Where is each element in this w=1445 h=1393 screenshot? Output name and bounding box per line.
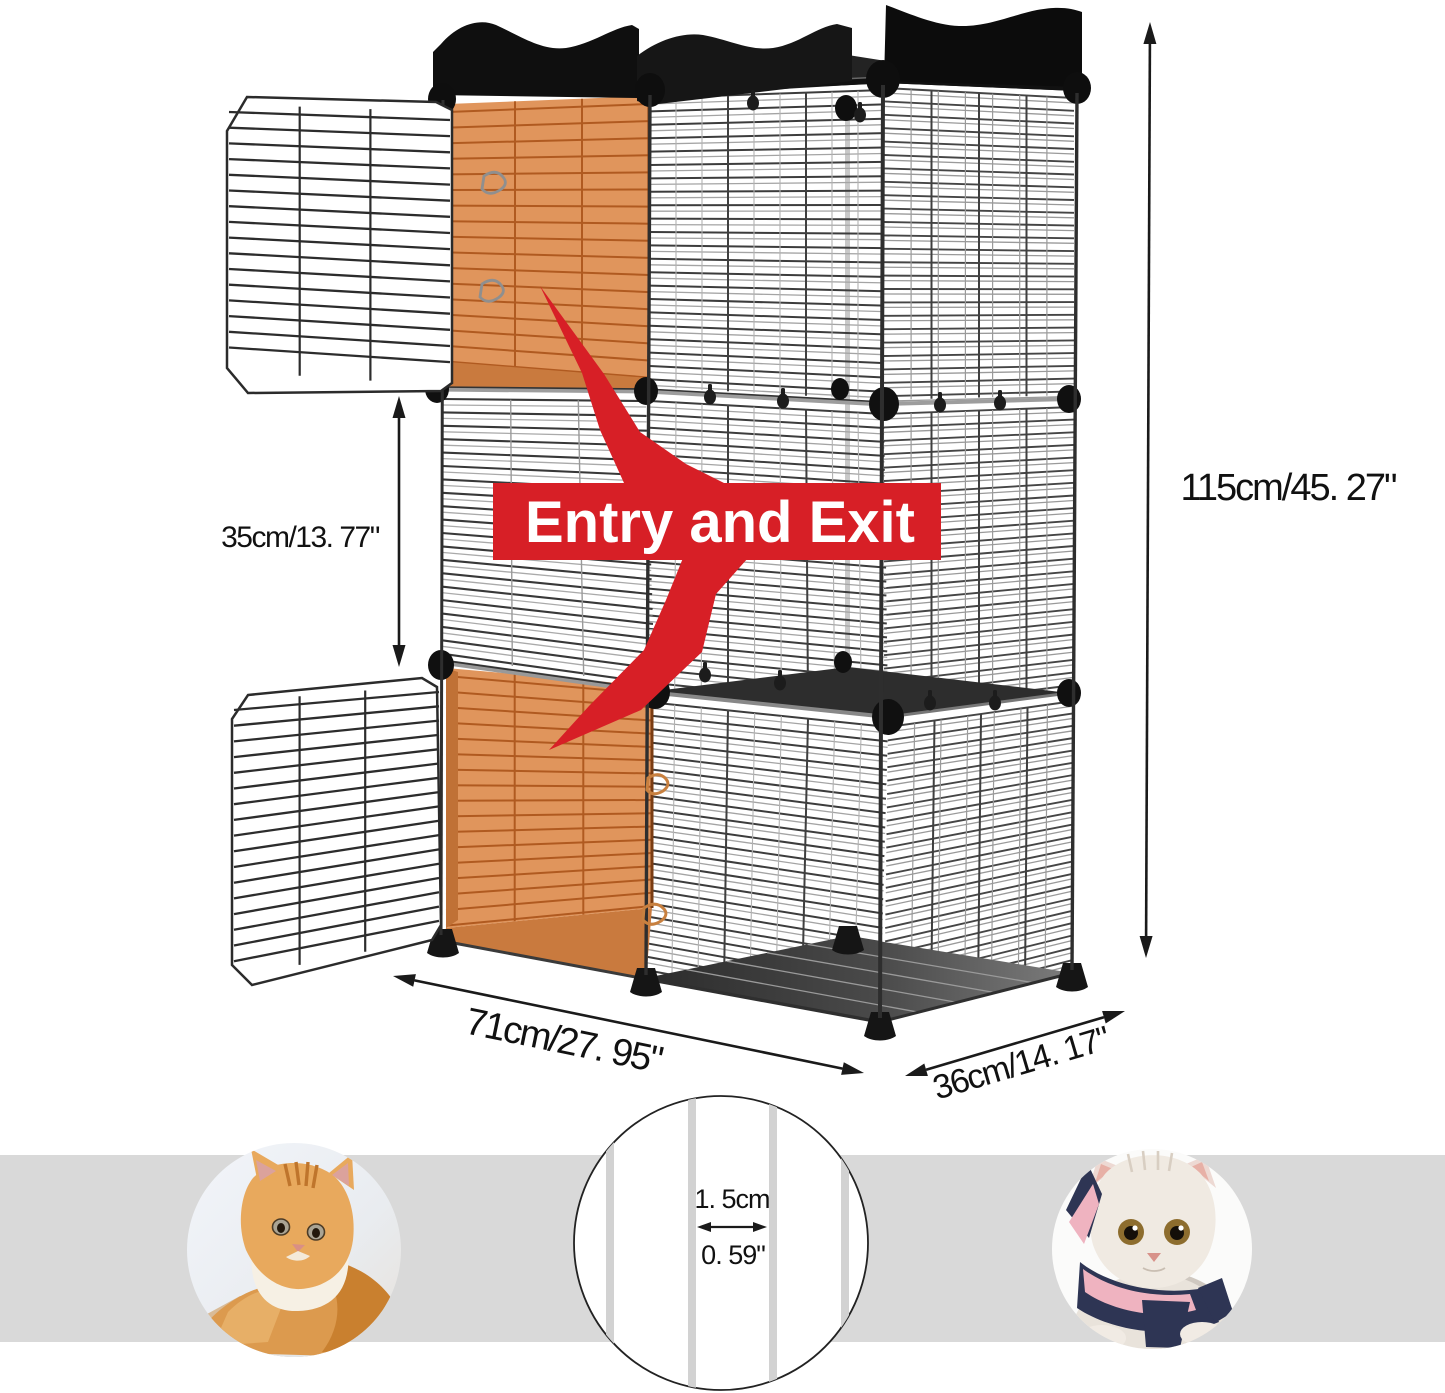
svg-text:115cm/45. 27": 115cm/45. 27" xyxy=(1181,467,1396,509)
svg-text:36cm/14. 17": 36cm/14. 17" xyxy=(929,1019,1114,1107)
svg-text:Entry and Exit: Entry and Exit xyxy=(525,490,915,555)
svg-text:0. 59": 0. 59" xyxy=(701,1240,765,1270)
svg-text:35cm/13. 77": 35cm/13. 77" xyxy=(221,521,380,554)
svg-text:71cm/27. 95": 71cm/27. 95" xyxy=(462,1001,666,1082)
svg-text:1. 5cm: 1. 5cm xyxy=(694,1184,769,1214)
